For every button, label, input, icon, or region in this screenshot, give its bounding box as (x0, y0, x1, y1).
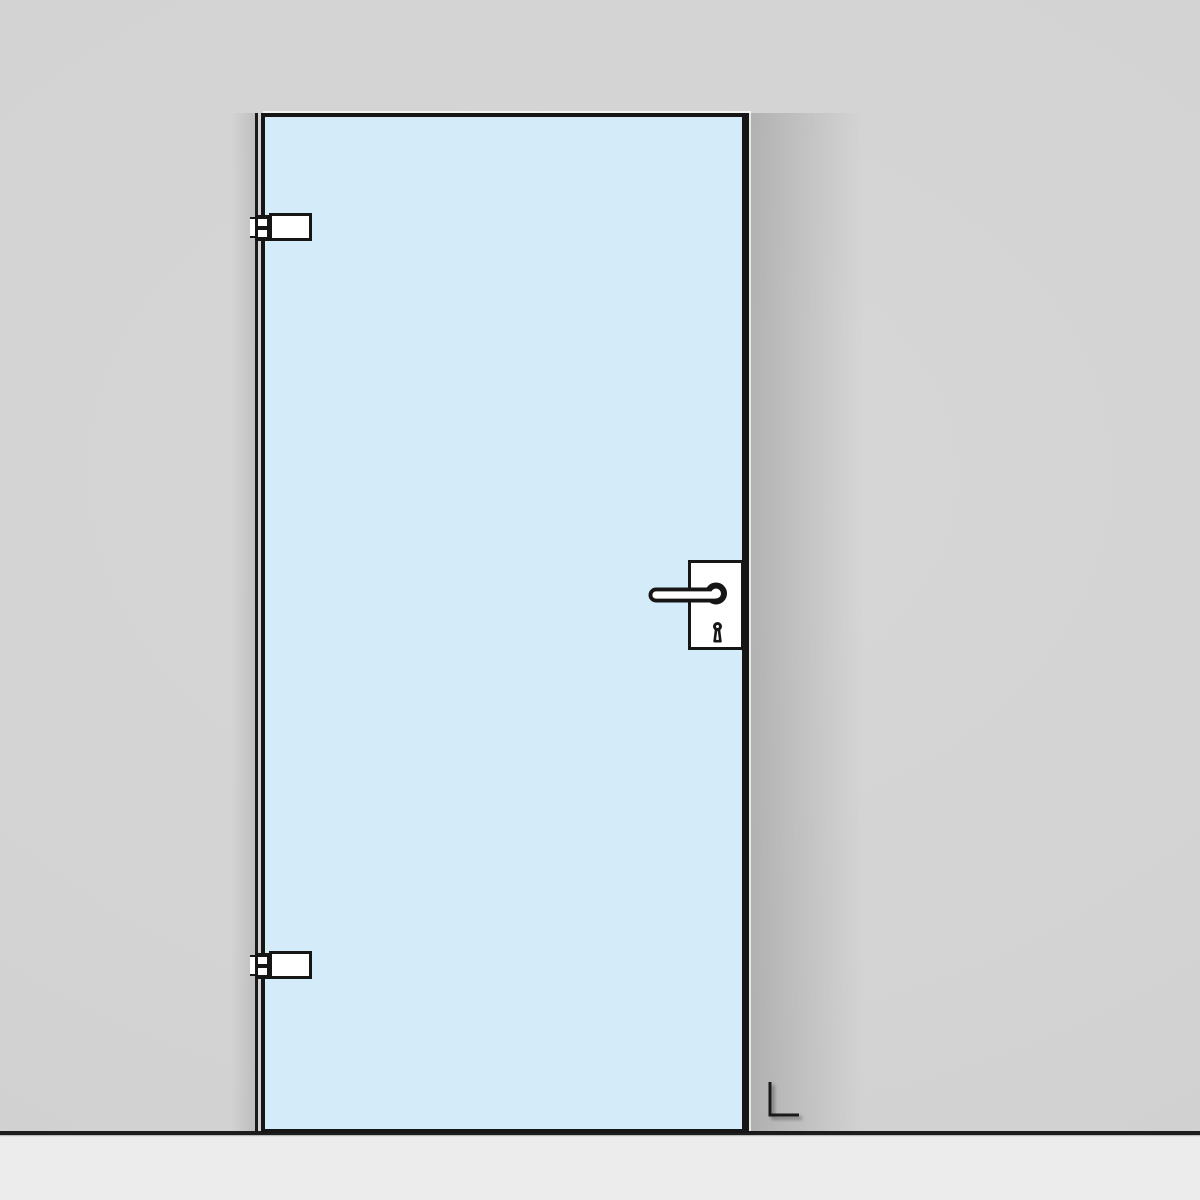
door-shadow-right (749, 113, 864, 1133)
hinge-side-mark-glyph (770, 1082, 799, 1115)
glass-door-illustration (0, 0, 1200, 1200)
hinge-clamp-screw (258, 230, 267, 237)
bottom-hinge (250, 951, 312, 980)
lever-handle-fill (652, 591, 718, 598)
hinge-clamp-screw (258, 968, 267, 975)
top-hinge (250, 213, 312, 242)
hinge-leaf (269, 951, 312, 979)
hinge-side-mark (760, 1072, 810, 1127)
keyhole-icon (715, 624, 721, 642)
hinge-leaf (269, 213, 312, 241)
door-handle-assembly (640, 555, 750, 655)
door-jamb-line (255, 113, 258, 1133)
hinge-clamp-screw (258, 219, 267, 226)
floor (0, 1135, 1200, 1200)
hinge-clamp-screw (258, 957, 267, 964)
